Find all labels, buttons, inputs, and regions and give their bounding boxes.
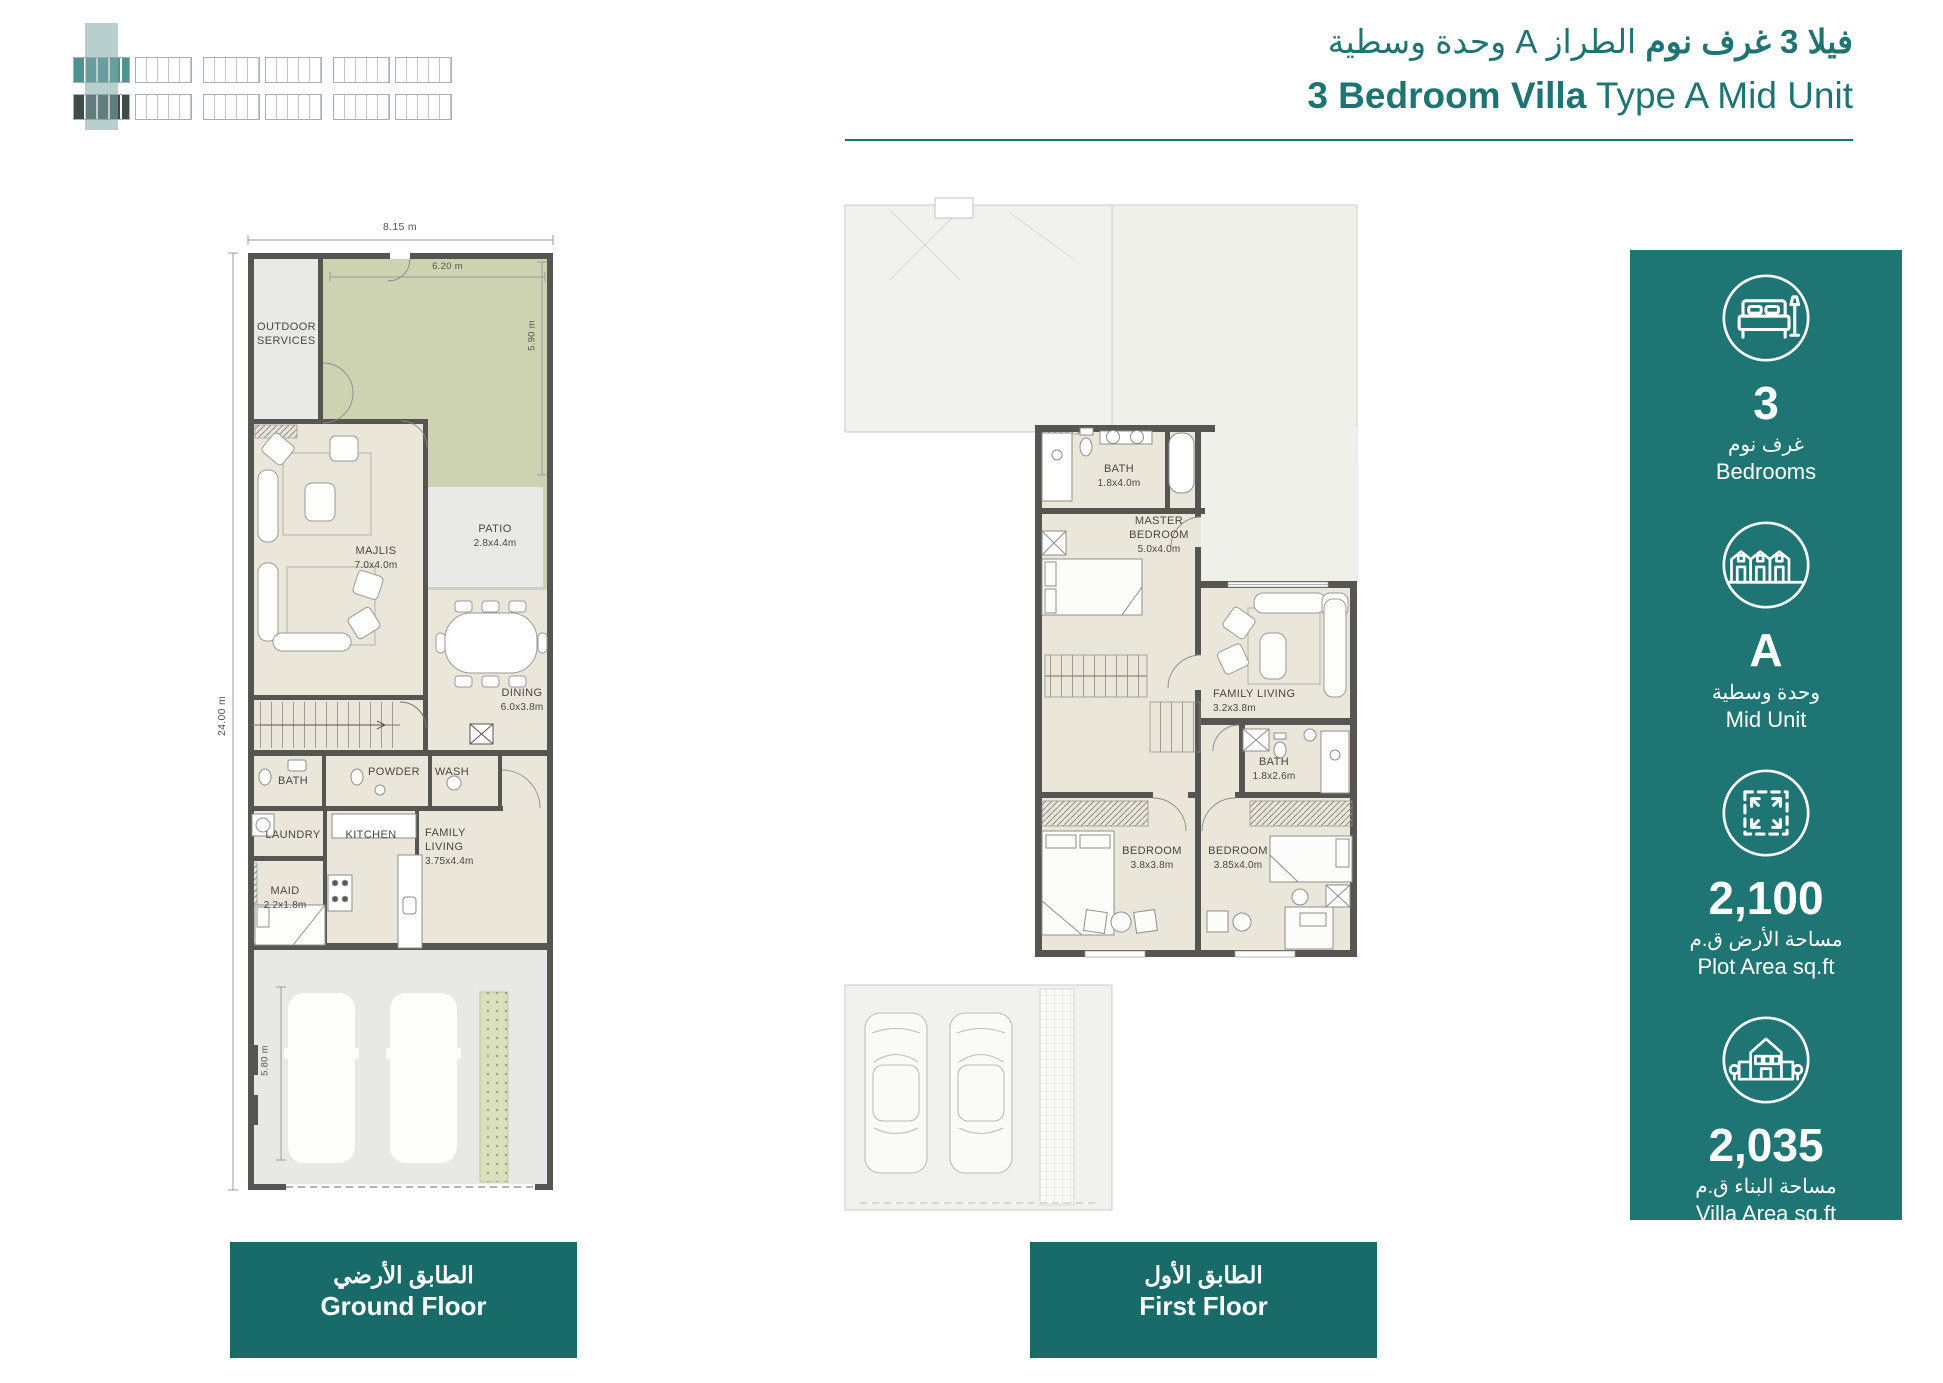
room-label-family-living: FAMILY LIVING 3.2x3.8m — [1213, 688, 1323, 715]
title-english: 3 Bedroom Villa Type A Mid Unit — [1307, 75, 1853, 117]
stat-villa-area-label-ar: مساحة البناء ق.م — [1695, 1174, 1837, 1199]
stat-plot-area: 2,100 مساحة الأرض ق.م Plot Area sq.ft — [1689, 767, 1842, 980]
majlis-furniture — [258, 431, 384, 651]
room-label-bedroom2: BEDROOM 3.85x4.0m — [1203, 845, 1273, 872]
first-floor-badge-english: First Floor — [1030, 1291, 1377, 1322]
plot-area-icon — [1720, 767, 1812, 864]
site-block — [395, 57, 452, 83]
room-label-bath2: BATH 1.8x2.6m — [1244, 756, 1304, 783]
title-arabic-rest: الطراز A وحدة وسطية — [1328, 23, 1636, 60]
dining-table — [436, 601, 547, 687]
site-block — [203, 94, 260, 120]
stat-bedrooms-label-ar: غرف نوم — [1728, 432, 1804, 457]
site-plan — [70, 20, 470, 135]
stat-bedrooms-label-en: Bedrooms — [1716, 459, 1816, 485]
stat-bedrooms: 3 غرف نوم Bedrooms — [1716, 272, 1816, 485]
room-label-family-living: FAMILY LIVING 3.75x4.4m — [425, 827, 483, 868]
room-label-kitchen: KITCHEN — [340, 829, 402, 843]
room-label-dining: DINING 6.0x3.8m — [491, 687, 553, 714]
room-label-maid: MAID 2.2x1.8m — [255, 885, 315, 912]
room-label-majlis: MAJLIS 7.0x4.0m — [345, 545, 407, 572]
room-label-bedroom1: BEDROOM 3.8x3.8m — [1117, 845, 1187, 872]
room-label-bath1: BATH 1.8x4.0m — [1088, 463, 1150, 490]
stat-unit-type-value: A — [1749, 626, 1782, 674]
site-block — [135, 57, 192, 83]
room-label-master-bedroom: MASTER BEDROOM 5.0x4.0m — [1119, 515, 1199, 556]
stat-villa-area: 2,035 مساحة البناء ق.م Villa Area sq.ft — [1695, 1014, 1837, 1227]
stat-unit-type-label-ar: وحدة وسطية — [1712, 680, 1820, 705]
room-label-outdoor-services: OUTDOOR SERVICES — [257, 321, 332, 349]
site-block — [265, 94, 322, 120]
faded-car — [865, 1013, 927, 1173]
ground-floor-badge-arabic: الطابق الأرضي — [230, 1262, 577, 1289]
wardrobe — [1250, 801, 1352, 826]
site-block — [395, 94, 452, 120]
stat-plot-area-label-en: Plot Area sq.ft — [1698, 954, 1835, 980]
site-block — [333, 57, 390, 83]
car — [386, 993, 461, 1163]
site-block — [135, 94, 192, 120]
stat-unit-type-label-en: Mid Unit — [1726, 707, 1807, 733]
stat-plot-area-label-ar: مساحة الأرض ق.م — [1689, 927, 1842, 952]
site-block — [265, 57, 322, 83]
stat-bedrooms-value: 3 — [1753, 379, 1779, 427]
stat-plot-area-value: 2,100 — [1708, 874, 1823, 922]
dim-width: 8.15 m — [350, 221, 450, 233]
dim-garden-width: 6.20 m — [415, 261, 480, 272]
title-english-rest: Type A Mid Unit — [1596, 75, 1853, 116]
bed-icon — [1720, 272, 1812, 369]
ground-floor-badge-english: Ground Floor — [230, 1291, 577, 1322]
first-floor-badge-arabic: الطابق الأول — [1030, 1262, 1377, 1289]
stat-unit-type: A وحدة وسطية Mid Unit — [1712, 519, 1820, 732]
dim-garage-depth: 5.80 m — [260, 1031, 271, 1091]
title-english-bold: 3 Bedroom Villa — [1307, 75, 1586, 116]
room-label-laundry: LAUNDRY — [262, 829, 324, 843]
first-floor-badge: الطابق الأول First Floor — [1030, 1242, 1377, 1358]
wardrobe — [1042, 801, 1148, 826]
ground-floor-badge: الطابق الأرضي Ground Floor — [230, 1242, 577, 1358]
room-label-powder: POWDER — [364, 766, 424, 780]
dim-height: 24.00 m — [216, 681, 228, 751]
stat-villa-area-label-en: Villa Area sq.ft — [1696, 1201, 1836, 1227]
stat-villa-area-value: 2,035 — [1708, 1121, 1823, 1169]
shaft-box — [470, 724, 493, 744]
room-label-bath: BATH — [263, 775, 323, 789]
dim-garden-depth: 5.90 m — [527, 306, 538, 366]
first-floor-plan: BATH 1.8x4.0m MASTER BEDROOM 5.0x4.0m FA… — [830, 195, 1370, 1225]
title-arabic-bold: فيلا 3 غرف نوم — [1645, 23, 1853, 60]
villa-area-icon — [1720, 1014, 1812, 1111]
townhouse-icon — [1720, 519, 1812, 616]
title-underline — [845, 139, 1853, 141]
site-highlight-band — [85, 23, 118, 130]
site-block — [333, 94, 390, 120]
room-label-wash: WASH — [422, 766, 482, 780]
faded-car — [950, 1013, 1012, 1173]
room-label-patio: PATIO 2.8x4.4m — [464, 523, 526, 550]
ground-floor-plan: 8.15 m 24.00 m 6.20 m 5.90 m 5.80 m OUTD… — [205, 215, 560, 1205]
stairs-flight — [1150, 702, 1200, 752]
page-title: فيلا 3 غرف نوم الطراز A وحدة وسطية 3 Bed… — [1307, 22, 1853, 117]
site-block — [203, 57, 260, 83]
info-panel: 3 غرف نوم Bedrooms A وحدة وسطية Mid Unit — [1630, 250, 1902, 1220]
roof-zone-top — [845, 205, 1112, 432]
car — [284, 993, 359, 1163]
title-arabic: فيلا 3 غرف نوم الطراز A وحدة وسطية — [1307, 22, 1853, 61]
